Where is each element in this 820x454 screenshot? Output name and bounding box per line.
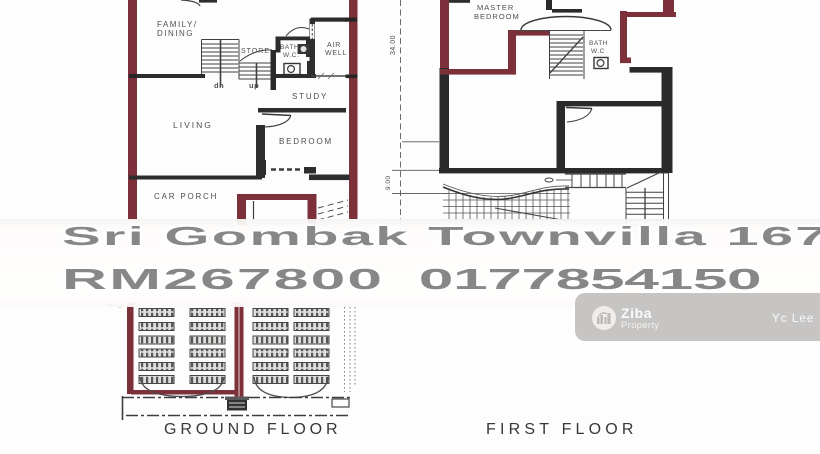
svg-text:34.00: 34.00 bbox=[390, 35, 397, 55]
svg-text:up: up bbox=[249, 81, 259, 90]
svg-text:9.00: 9.00 bbox=[385, 175, 392, 190]
svg-text:BATH: BATH bbox=[280, 44, 299, 51]
svg-text:BATH: BATH bbox=[589, 40, 608, 47]
svg-text:BEDROOM: BEDROOM bbox=[279, 137, 333, 146]
svg-text:AIR: AIR bbox=[327, 42, 341, 49]
svg-text:W.C: W.C bbox=[591, 48, 605, 55]
svg-text:FAMILY/: FAMILY/ bbox=[157, 20, 198, 29]
svg-text:CAR PORCH: CAR PORCH bbox=[154, 192, 218, 201]
svg-text:WELL: WELL bbox=[325, 50, 347, 57]
svg-text:LIVING: LIVING bbox=[173, 120, 213, 130]
svg-text:MASTER: MASTER bbox=[477, 3, 514, 12]
svg-text:W.C.: W.C. bbox=[283, 52, 299, 59]
svg-text:STORE: STORE bbox=[241, 48, 270, 55]
svg-text:STUDY: STUDY bbox=[292, 92, 328, 101]
svg-text:BEDROOM: BEDROOM bbox=[474, 12, 520, 21]
svg-text:dn: dn bbox=[214, 81, 224, 90]
svg-text:DINING: DINING bbox=[157, 29, 194, 38]
